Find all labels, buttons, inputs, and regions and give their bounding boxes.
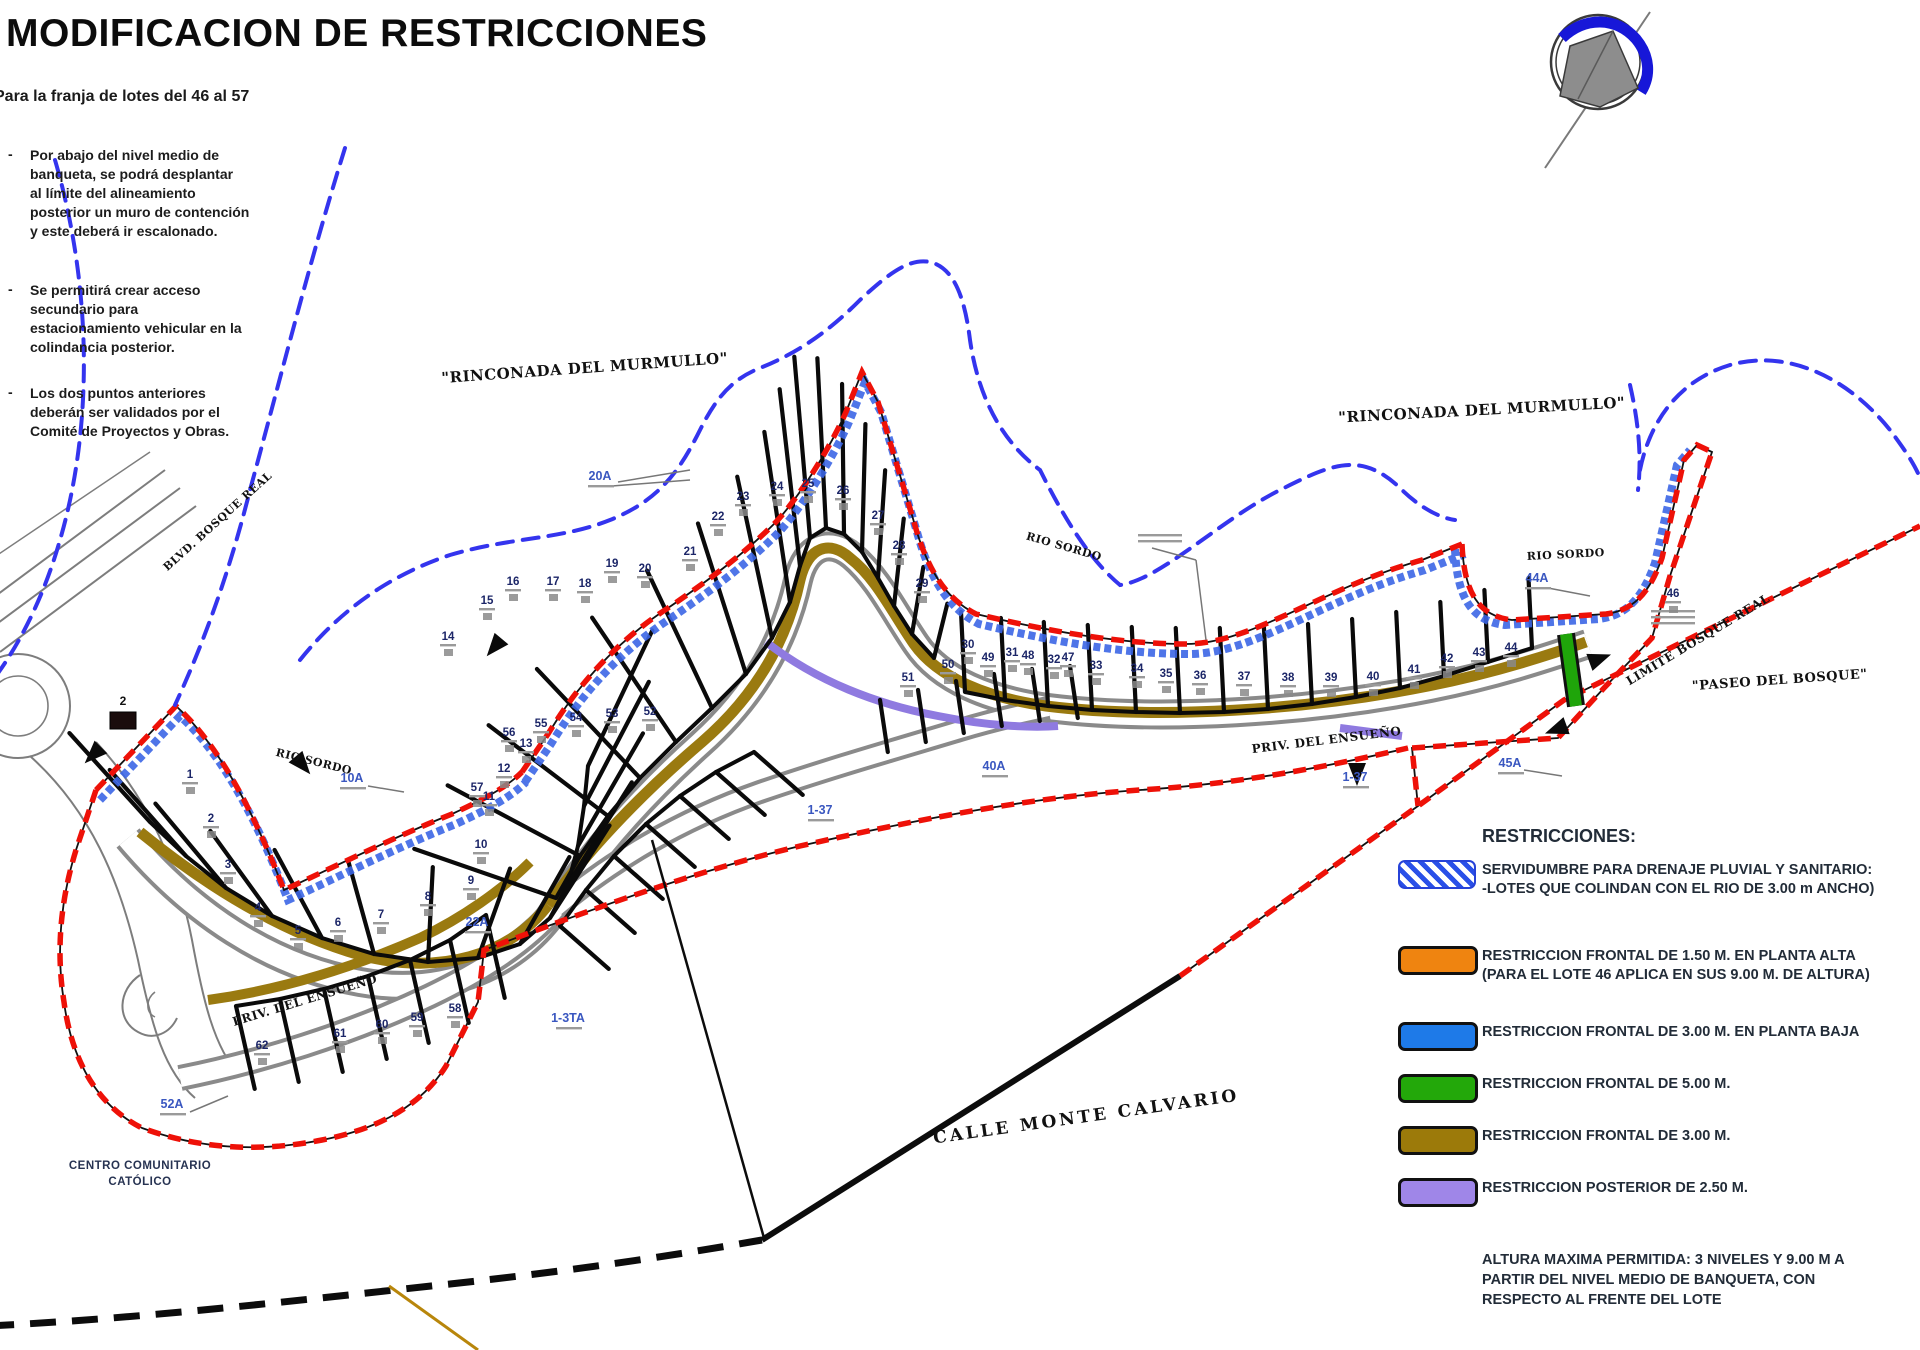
parcel-label: 10A [341, 771, 364, 785]
lot-annotation-smudge [451, 1021, 460, 1028]
lot-annotation-smudge [964, 657, 973, 664]
lot-annotation-smudge [500, 781, 509, 788]
olive-swatch [1398, 1126, 1478, 1155]
lot-number: 30 [962, 639, 975, 651]
lot-division-tick [862, 424, 865, 552]
bullet-dash: - [8, 384, 13, 400]
lot-number: 55 [535, 718, 548, 730]
lot-annotation-smudge [895, 558, 904, 565]
lot-number: 19 [606, 558, 619, 570]
lot-annotation-smudge [203, 826, 219, 828]
boulevard-roads [0, 452, 240, 1098]
lot-annotation-smudge [568, 725, 584, 727]
lot-number: 52 [644, 706, 657, 718]
lot-annotation-smudge [646, 724, 655, 731]
lot-annotation-smudge [1060, 665, 1076, 667]
bullet-note-3: Los dos puntos anteriores deberán ser va… [30, 384, 330, 441]
lot-annotation-smudge [1064, 670, 1073, 677]
lot-annotation-smudge [804, 496, 813, 503]
south-boundary-lines [0, 840, 1180, 1326]
lot-number: 18 [579, 578, 592, 590]
lot-annotation-smudge [900, 685, 916, 687]
lot-division-tick [1396, 612, 1400, 688]
lot-annotation-smudge [1050, 672, 1059, 679]
leader-line [1196, 560, 1206, 640]
lot-annotation-smudge [501, 740, 517, 742]
lot-annotation-smudge [1284, 690, 1293, 697]
lot-number: 2 [208, 813, 214, 825]
street-label: "RINCONADA DEL MURMULLO" [1338, 394, 1626, 427]
lot-annotation-smudge [710, 524, 726, 526]
lot-annotation-smudge [424, 909, 433, 916]
lot-number: 8 [425, 891, 432, 903]
centro-comunitario-label: CENTRO COMUNITARIO CATÓLICO [40, 1158, 240, 1190]
lot-number: 54 [570, 712, 583, 724]
lot-number: 27 [872, 510, 885, 522]
lot-annotation-smudge [1323, 685, 1339, 687]
lot-annotation-smudge [1046, 667, 1062, 669]
lot-annotation-smudge [330, 930, 346, 932]
lot-annotation-smudge [1475, 665, 1484, 672]
lot-annotation-smudge [686, 564, 695, 571]
lot-number: 6 [335, 917, 341, 929]
lot-number: 4 [255, 902, 262, 914]
parcel-annotation-smudge [160, 1113, 186, 1115]
monument-marker: 2 [110, 694, 136, 729]
lot-annotation-smudge [1503, 655, 1519, 657]
lot-annotation-smudge [440, 644, 456, 646]
lot-number: 60 [376, 1019, 389, 1031]
lot-annotation-smudge [444, 649, 453, 656]
lot-annotation-smudge [641, 581, 650, 588]
lot-annotation-smudge [1369, 689, 1378, 696]
site-plan-page: { "title": "MODIFICACION DE RESTRICCIONE… [0, 0, 1920, 1350]
parcel-label: 22A [466, 915, 489, 929]
lot-number: 3 [225, 859, 231, 871]
legend-item-text: RESTRICCION FRONTAL DE 1.50 M. EN PLANTA… [1482, 947, 1920, 985]
street-label: CALLE MONTE CALVARIO [932, 1086, 1241, 1149]
purple-swatch [1398, 1178, 1478, 1207]
lot-division-tick [842, 384, 844, 534]
lot-number: 44 [1505, 642, 1518, 654]
lot-number: 58 [449, 1003, 462, 1015]
legend-item-text: RESTRICCION POSTERIOR DE 2.50 M. [1482, 1179, 1920, 1198]
boxed-label-text: 2 [120, 694, 127, 708]
lot-annotation-smudge [1240, 689, 1249, 696]
lot-annotation-smudge [1162, 686, 1171, 693]
lot-annotation-smudge [469, 795, 485, 797]
lot-annotation-smudge [1158, 681, 1174, 683]
lot-division-tick [586, 890, 635, 933]
lot-annotation-smudge [870, 523, 886, 525]
lot-annotation-smudge [290, 938, 306, 940]
illegible-annotation [1138, 534, 1182, 536]
lot-annotation-smudge [518, 751, 534, 753]
lot-annotation-smudge [891, 553, 907, 555]
parcel-label: 20A [589, 469, 612, 483]
lot-number: 23 [737, 491, 750, 503]
lot-annotation-smudge [496, 776, 512, 778]
lot-number: 24 [771, 481, 784, 493]
frontal-restriction-5m-band [1566, 634, 1576, 706]
lot-annotation-smudge [1665, 601, 1681, 603]
lot-annotation-smudge [769, 494, 785, 496]
legend-item-text: RESTRICCION FRONTAL DE 5.00 M. [1482, 1075, 1920, 1094]
survey-line-yellow [389, 1286, 478, 1350]
lot-number: 32 [1048, 654, 1061, 666]
lot-annotation-smudge [334, 935, 343, 942]
lot-annotation-smudge [1507, 660, 1516, 667]
street-label: BLVD. BOSQUE REAL [161, 469, 275, 574]
lot-annotation-smudge [914, 591, 930, 593]
street-label: RIO SORDO [1527, 546, 1606, 563]
lot-number: 43 [1473, 647, 1486, 659]
lot-annotation-smudge [1406, 677, 1422, 679]
parcel-label: 52A [161, 1097, 184, 1111]
lot-division-tick [414, 849, 556, 898]
lot-annotation-smudge [835, 498, 851, 500]
lot-number: 50 [942, 659, 955, 671]
illegible-annotation [1651, 616, 1695, 618]
lot-annotation-smudge [874, 528, 883, 535]
hatch-blue-swatch [1398, 860, 1476, 889]
lot-annotation-smudge [918, 596, 927, 603]
lot-number: 20 [639, 563, 652, 575]
lot-annotation-smudge [1471, 660, 1487, 662]
lot-number: 49 [982, 652, 995, 664]
lot-number: 21 [684, 546, 697, 558]
lot-annotation-smudge [1008, 665, 1017, 672]
lot-annotation-smudge [545, 589, 561, 591]
illegible-annotation [1651, 622, 1695, 624]
bullet-note-1: Por abajo del nivel medio de banqueta, s… [30, 146, 330, 241]
lot-annotation-smudge [839, 503, 848, 510]
lot-number: 35 [1160, 668, 1173, 680]
lot-number: 47 [1062, 652, 1075, 664]
lot-annotation-smudge [473, 800, 482, 807]
lot-annotation-smudge [509, 594, 518, 601]
lot-division-tick [647, 571, 712, 708]
page-subtitle: Para la franja de lotes del 46 al 57 [0, 88, 249, 106]
lot-annotation-smudge [463, 888, 479, 890]
lot-annotation-smudge [682, 559, 698, 561]
leader-line [368, 786, 404, 792]
parcel-label: 1-37 [1342, 770, 1367, 784]
direction-arrow-icon [1586, 646, 1614, 671]
lot-division-tick [817, 358, 826, 528]
lot-number: 31 [1006, 647, 1019, 659]
lot-annotation-smudge [549, 594, 558, 601]
lot-annotation-smudge [960, 652, 976, 654]
lot-number: 42 [1441, 653, 1454, 665]
lot-annotation-smudge [332, 1041, 348, 1043]
lot-number: 59 [411, 1012, 424, 1024]
lot-annotation-smudge [604, 571, 620, 573]
parcel-label: 1-3TA [551, 1011, 585, 1025]
lot-annotation-smudge [374, 1032, 390, 1034]
lot-annotation-smudge [1129, 676, 1145, 678]
bullet-dash: - [8, 281, 13, 297]
lot-annotation-smudge [537, 736, 546, 743]
lot-annotation-smudge [186, 787, 195, 794]
lot-annotation-smudge [522, 756, 531, 763]
lot-number: 37 [1238, 671, 1251, 683]
lot-annotation-smudge [479, 608, 495, 610]
lot-annotation-smudge [294, 943, 303, 950]
parcel-label: 40A [983, 759, 1006, 773]
lot-number: 1 [187, 769, 194, 781]
lot-number: 17 [547, 576, 560, 588]
lot-division-tick [560, 926, 609, 969]
lot-number: 38 [1282, 672, 1295, 684]
lot-annotation-smudge [409, 1025, 425, 1027]
parcel-label: 44A [1526, 571, 1549, 585]
lot-number: 16 [507, 576, 520, 588]
lot-number: 53 [606, 708, 619, 720]
lot-number: 12 [498, 763, 511, 775]
lot-annotation-smudge [505, 745, 514, 752]
lot-annotation-smudge [773, 499, 782, 506]
lot-number: 14 [442, 631, 455, 643]
parcel-annotation-smudge [982, 775, 1008, 777]
lot-annotation-smudge [1236, 684, 1252, 686]
lot-annotation-smudge [413, 1030, 422, 1037]
lot-annotation-smudge [373, 922, 389, 924]
parcel-annotation-smudge [1525, 587, 1551, 589]
lot-annotation-smudge [224, 877, 233, 884]
lot-number: 7 [378, 909, 384, 921]
street-label: RIO SORDO [1025, 530, 1104, 564]
lot-division-tick [448, 785, 580, 856]
lot-number: 62 [256, 1040, 269, 1052]
lot-number: 13 [520, 738, 533, 750]
lot-annotation-smudge [1669, 606, 1678, 613]
parcel-annotation-smudge [588, 485, 614, 487]
lot-number: 57 [471, 782, 484, 794]
lot-annotation-smudge [481, 804, 497, 806]
lot-annotation-smudge [254, 920, 263, 927]
lot-annotation-smudge [420, 904, 436, 906]
lot-annotation-smudge [477, 857, 486, 864]
legend-item-text: SERVIDUMBRE PARA DRENAJE PLUVIAL Y SANIT… [1482, 861, 1920, 899]
lot-annotation-smudge [714, 529, 723, 536]
lot-annotation-smudge [800, 491, 816, 493]
lot-annotation-smudge [336, 1046, 345, 1053]
lot-annotation-smudge [1443, 671, 1452, 678]
lot-division-tick [588, 630, 652, 766]
lot-annotation-smudge [1004, 660, 1020, 662]
lot-number: 48 [1022, 650, 1035, 662]
lot-annotation-smudge [739, 509, 748, 516]
lot-annotation-smudge [220, 872, 236, 874]
lot-annotation-smudge [940, 672, 956, 674]
leader-line [190, 1096, 228, 1112]
compass-north-arrow-icon [1545, 12, 1650, 168]
lot-number: 46 [1667, 588, 1680, 600]
lot-annotation-smudge [984, 670, 993, 677]
lot-annotation-smudge [182, 782, 198, 784]
lot-number: 40 [1367, 671, 1380, 683]
lot-annotation-smudge [608, 576, 617, 583]
lot-annotation-smudge [1196, 688, 1205, 695]
lot-division-tick [698, 523, 746, 674]
parcel-annotation-smudge [465, 931, 491, 933]
lot-number: 33 [1090, 660, 1103, 672]
lot-division-tick [934, 604, 947, 658]
lot-annotation-smudge [1088, 673, 1104, 675]
illegible-annotation [1138, 540, 1182, 542]
legend-item-text: RESTRICCION FRONTAL DE 3.00 M. EN PLANTA… [1482, 1023, 1920, 1042]
parcel-annotation-smudge [556, 1027, 582, 1029]
lot-annotation-smudge [1410, 682, 1419, 689]
street-label: LIMITE BOSQUE REAL [1624, 591, 1773, 688]
leader-line [1524, 770, 1562, 776]
lot-annotation-smudge [505, 589, 521, 591]
lot-annotation-smudge [944, 677, 953, 684]
lot-number: 61 [334, 1028, 347, 1040]
legend-heading: RESTRICCIONES: [1482, 826, 1636, 847]
blue-swatch [1398, 1022, 1478, 1051]
lot-division-tick [349, 862, 374, 954]
lot-annotation-smudge [577, 591, 593, 593]
legend-item-text: RESTRICCION FRONTAL DE 3.00 M. [1482, 1127, 1920, 1146]
lot-number: 41 [1408, 664, 1421, 676]
parcel-annotation-smudge [1343, 786, 1369, 788]
street-label: "PASEO DEL BOSQUE" [1691, 667, 1868, 694]
bullet-note-2: Se permitirá crear acceso secundario par… [30, 281, 330, 357]
lot-annotation-smudge [1192, 683, 1208, 685]
lot-annotation-smudge [1133, 681, 1142, 688]
lot-number: 34 [1131, 663, 1144, 675]
lot-number: 25 [802, 478, 815, 490]
lot-annotation-smudge [581, 596, 590, 603]
lot-number: 15 [481, 595, 494, 607]
lot-number: 29 [916, 578, 929, 590]
page-title: MODIFICACION DE RESTRICCIONES [6, 12, 707, 56]
lot-annotation-smudge [1092, 678, 1101, 685]
parcel-label: 45A [1499, 756, 1522, 770]
orange-swatch [1398, 946, 1478, 975]
green-swatch [1398, 1074, 1478, 1103]
lot-number: 56 [503, 727, 516, 739]
lot-annotation-smudge [483, 613, 492, 620]
lot-annotation-smudge [608, 726, 617, 733]
lot-annotation-smudge [637, 576, 653, 578]
lot-annotation-smudge [1020, 663, 1036, 665]
lot-annotation-smudge [467, 893, 476, 900]
max-height-note: ALTURA MAXIMA PERMITIDA: 3 NIVELES Y 9.0… [1482, 1250, 1912, 1310]
lot-annotation-smudge [1365, 684, 1381, 686]
lot-annotation-smudge [258, 1058, 267, 1065]
lot-annotation-smudge [735, 504, 751, 506]
lot-number: 36 [1194, 670, 1207, 682]
lot-annotation-smudge [1024, 668, 1033, 675]
direction-arrow-icon [480, 633, 509, 662]
lot-number: 10 [475, 839, 488, 851]
lot-annotation-smudge [604, 721, 620, 723]
lot-division-tick [1352, 619, 1356, 697]
lot-annotation-smudge [1327, 690, 1336, 697]
lot-number: 5 [295, 925, 302, 937]
lot-number: 28 [893, 540, 906, 552]
lot-number: 51 [902, 672, 915, 684]
lot-annotation-smudge [533, 731, 549, 733]
lot-annotation-smudge [1439, 666, 1455, 668]
lot-annotation-smudge [572, 730, 581, 737]
parcel-annotation-smudge [808, 819, 834, 821]
leader-line [1548, 588, 1590, 596]
bullet-dash: - [8, 146, 13, 162]
internal-roads [128, 546, 1588, 1078]
lot-annotation-smudge [485, 809, 494, 816]
street-label: "RINCONADA DEL MURMULLO" [441, 349, 729, 387]
lot-annotation-smudge [254, 1053, 270, 1055]
lot-annotation-smudge [1280, 685, 1296, 687]
lot-number: 26 [837, 485, 850, 497]
lot-annotation-smudge [904, 690, 913, 697]
lot-number: 39 [1325, 672, 1338, 684]
lot-number: 9 [468, 875, 474, 887]
lot-annotation-smudge [473, 852, 489, 854]
lot-annotation-smudge [378, 1037, 387, 1044]
parcel-label: 1-37 [807, 803, 832, 817]
lot-annotation-smudge [447, 1016, 463, 1018]
lot-annotation-smudge [980, 665, 996, 667]
lot-number: 22 [712, 511, 725, 523]
lot-annotation-smudge [642, 719, 658, 721]
lot-annotation-smudge [250, 915, 266, 917]
parcel-annotation-smudge [340, 787, 366, 789]
street-label: PRIV. DEL ENSUEÑO [1251, 723, 1402, 756]
parcel-annotation-smudge [1498, 772, 1524, 774]
lot-annotation-smudge [377, 927, 386, 934]
lot-annotation-smudge [207, 831, 216, 838]
